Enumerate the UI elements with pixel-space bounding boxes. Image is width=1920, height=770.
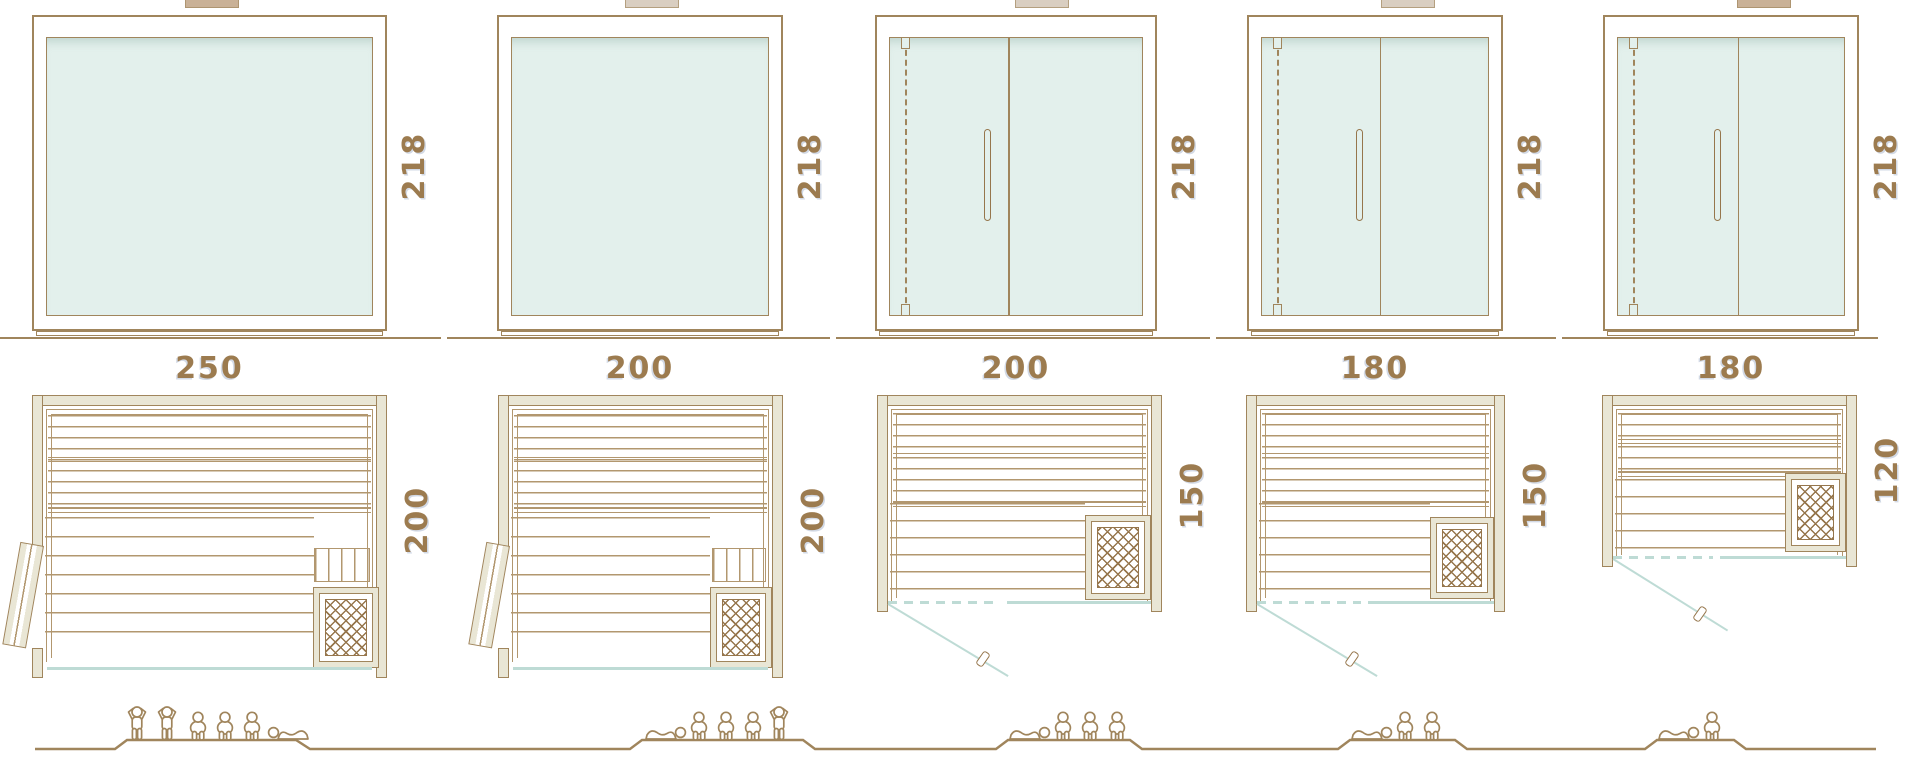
door-hinge-line [905,40,907,313]
sauna-size-diagram: 250 218 200 [0,0,1920,770]
elevation-ground-line [836,337,1210,339]
door-hinge-icon [1629,37,1638,49]
wood-lining [1260,409,1491,602]
heater-lattice-icon [1442,529,1482,587]
wall-right [376,395,387,678]
wall-right [772,395,783,678]
terrain-ground-line [35,740,1876,749]
capacity-figures-1 [129,707,309,740]
depth-dimension: 200 [399,475,435,565]
elevation-front [32,15,387,331]
door-handle-icon [975,650,991,668]
width-dimension: 200 [875,350,1157,386]
person-standing-icon [159,707,176,740]
person-sitting-icon [1425,712,1440,740]
door-seam [1008,38,1010,315]
lower-bench-slats [1259,503,1430,598]
heater-guard [1436,523,1488,593]
glass-front-line [47,667,372,670]
depth-value: 150 [1175,461,1210,530]
wood-lining [51,414,368,658]
depth-value: 200 [400,486,435,555]
wood-lining [891,409,1148,602]
width-value: 200 [606,351,675,386]
heater-lattice-icon [722,599,760,656]
wood-lining [512,409,769,662]
door-seam [1380,38,1382,315]
door-handle-icon [1692,605,1708,623]
height-value: 218 [1869,132,1904,201]
glass-front [1261,37,1489,316]
bench-front-edge [1262,501,1489,507]
bench-step-edge [1618,439,1841,444]
height-dimension: 218 [1512,121,1548,211]
height-value: 218 [1513,132,1548,201]
sill [1607,331,1855,336]
depth-dimension: 200 [795,475,831,565]
floor-plan [877,395,1162,612]
height-dimension: 218 [1868,121,1904,211]
elevation-ground-line [0,337,441,339]
door-hinge-icon [901,37,910,49]
door-handle-icon [1714,129,1721,220]
floor-plan [1246,395,1505,612]
heater-guard [1791,479,1840,546]
upper-bench-slats [1262,413,1489,501]
depth-dimension: 150 [1517,450,1553,540]
width-value: 180 [1341,351,1410,386]
heater-guard [319,593,373,662]
sill [501,331,779,336]
roof-block [1737,0,1791,8]
bench-front-edge [48,507,371,513]
door-seam [1738,38,1740,315]
door-swing-line [1256,603,1377,677]
glass-front-dashed-line [1613,556,1713,559]
wall-top [877,395,1162,406]
roof-block [1015,0,1069,8]
height-value: 218 [397,132,432,201]
elevation-front [1603,15,1859,331]
wall-left [1602,395,1613,567]
bench-step-edge [514,457,767,462]
person-lying-icon [1659,728,1698,739]
capacity-figures-5 [1659,712,1719,740]
door-hinge-line [1277,40,1279,313]
door-handle-icon [1356,129,1363,220]
wood-lining [896,414,1143,598]
person-sitting-icon [692,712,707,740]
height-value: 218 [793,132,828,201]
wood-lining [1616,409,1843,559]
person-sitting-icon [1705,712,1720,740]
person-sitting-icon [1110,712,1125,740]
heater-guard [716,593,766,662]
glass-front-line [1007,601,1151,604]
roof-block [1381,0,1435,8]
capacity-figures-4 [1352,712,1439,740]
depth-dimension: 120 [1869,425,1905,515]
elevation-front [497,15,783,331]
wall-left-stub [498,648,509,678]
bench-front-edge [514,507,767,513]
wall-left [877,395,888,612]
width-dimension: 180 [1247,350,1503,386]
wall-top [1602,395,1857,406]
door-hinge-icon [1273,304,1282,316]
bench-head-rest [314,548,370,582]
bench-front-edge [893,501,1146,507]
person-standing-icon [771,707,788,740]
wall-top [1246,395,1505,406]
upper-bench-slats [48,415,371,507]
wood-lining [1265,414,1486,598]
width-dimension: 180 [1603,350,1859,386]
heater-guard [1091,521,1145,594]
door-swing-line [887,603,1008,677]
wall-left [1246,395,1257,612]
depth-value: 200 [796,486,831,555]
person-lying-icon [1010,728,1049,739]
floor-plan [32,395,387,678]
elevation-ground-line [1562,337,1878,339]
wall-right [1151,395,1162,612]
heater [1430,517,1494,599]
roof-block [625,0,679,8]
open-door-leaf [2,542,44,649]
lower-bench-slats [45,517,314,650]
heater-lattice-icon [1797,485,1834,540]
door-handle-icon [1344,650,1360,668]
wall-left-stub [32,648,43,678]
wall-right [1494,395,1505,612]
person-sitting-icon [1056,712,1071,740]
heater [313,587,379,668]
upper-bench-slats [1618,413,1841,471]
wood-lining [517,414,764,658]
person-sitting-icon [191,712,206,740]
heater [710,587,772,668]
glass-front-dashed-line [888,601,1000,604]
person-lying-icon [269,728,308,739]
person-sitting-icon [218,712,233,740]
person-sitting-icon [245,712,260,740]
glass-front [1617,37,1845,316]
door-hinge-icon [1629,304,1638,316]
door-swing-line [1612,558,1728,632]
wood-lining [1621,414,1838,555]
upper-bench-slats [514,415,767,507]
sill [36,331,383,336]
sill [1251,331,1499,336]
sauna-1: 250 218 200 [0,0,1920,770]
door-hinge-icon [901,304,910,316]
roof-block [185,0,239,8]
elevation-front [1247,15,1503,331]
height-dimension: 218 [1166,121,1202,211]
width-value: 200 [982,351,1051,386]
height-dimension: 218 [792,121,828,211]
person-standing-icon [129,707,146,740]
width-value: 180 [1697,351,1766,386]
wall-left [32,395,43,548]
elevation-ground-line [1216,337,1556,339]
bench-step-edge [48,457,371,462]
sauna-5: 180 218 120 [0,0,1920,770]
width-value: 250 [175,351,244,386]
wall-left [498,395,509,548]
depth-value: 120 [1870,436,1905,505]
glass-front-line [1720,556,1846,559]
elevation-front [875,15,1157,331]
wall-top [498,395,783,406]
door-hinge-icon [1273,37,1282,49]
heater [1085,515,1151,600]
capacity-figures-3 [1010,712,1124,740]
floor-plan [1602,395,1857,567]
lower-bench-slats [1615,479,1785,552]
wood-lining [46,409,373,662]
heater-lattice-icon [1097,527,1139,588]
person-sitting-icon [746,712,761,740]
glass-front-line [1368,601,1494,604]
glass-front [511,37,769,316]
elevation-ground-line [447,337,830,339]
door-handle-icon [984,129,991,220]
height-value: 218 [1167,132,1202,201]
lower-bench-slats [890,503,1085,598]
person-sitting-icon [1398,712,1413,740]
glass-front [46,37,373,316]
heater-lattice-icon [325,599,367,656]
capacity-strip [0,690,1920,770]
floor-plan [498,395,783,678]
wall-right [1846,395,1857,567]
heater [1785,473,1846,552]
glass-front-dashed-line [1257,601,1361,604]
glass-front-line [513,667,768,670]
width-dimension: 200 [497,350,783,386]
bench-front-edge [1618,471,1841,477]
upper-bench-slats [893,413,1146,501]
bench-step-edge [893,453,1146,458]
depth-dimension: 150 [1174,450,1210,540]
sauna-2: 200 218 200 [0,0,1920,770]
wall-top [32,395,387,406]
person-lying-icon [646,728,685,739]
door-hinge-line [1633,40,1635,313]
person-sitting-icon [1083,712,1098,740]
person-lying-icon [1352,728,1391,739]
glass-front [889,37,1143,316]
depth-value: 150 [1518,461,1553,530]
capacity-figures-2 [646,707,788,740]
sauna-4: 180 218 150 [0,0,1920,770]
sauna-3: 200 218 150 [0,0,1920,770]
bench-step-edge [1262,453,1489,458]
bench-head-rest [712,548,766,582]
lower-bench-slats [511,517,710,650]
open-door-leaf [468,542,510,649]
width-dimension: 250 [32,350,387,386]
sill [879,331,1153,336]
person-sitting-icon [719,712,734,740]
height-dimension: 218 [396,121,432,211]
